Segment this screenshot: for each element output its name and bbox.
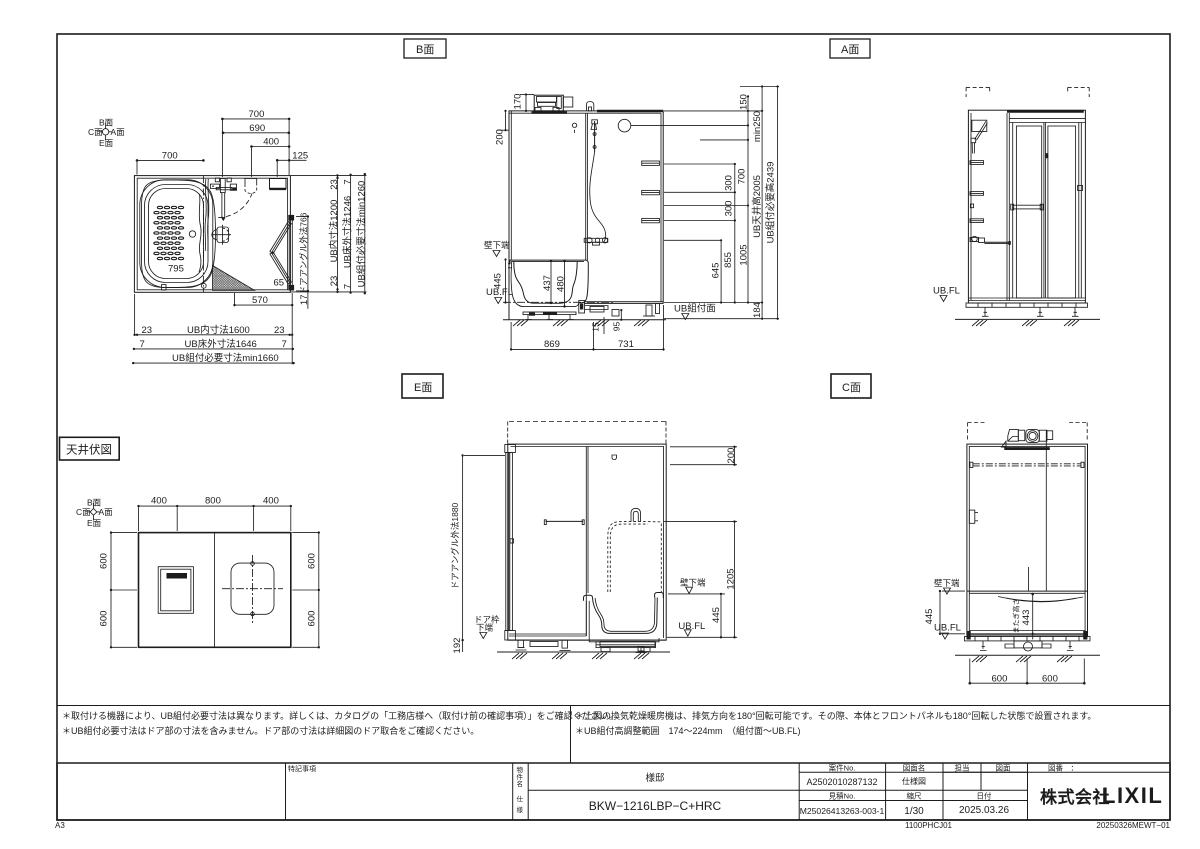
svg-text:1100PHCJ01: 1100PHCJ01 <box>905 821 953 830</box>
svg-text:570: 570 <box>252 295 268 306</box>
svg-text:17: 17 <box>299 295 310 306</box>
svg-text:C面: C面 <box>76 507 91 517</box>
svg-text:A2502010287132: A2502010287132 <box>806 777 877 787</box>
svg-text:445: 445 <box>711 607 722 623</box>
svg-text:E面: E面 <box>87 518 102 528</box>
svg-text:日付: 日付 <box>977 791 992 801</box>
svg-text:800: 800 <box>205 496 221 507</box>
svg-text:様: 様 <box>517 805 524 814</box>
svg-text:B面: B面 <box>99 118 114 128</box>
svg-text:2025.03.26: 2025.03.26 <box>959 805 1009 816</box>
svg-text:物: 物 <box>517 765 524 774</box>
svg-text:443: 443 <box>1021 610 1032 626</box>
svg-text:700: 700 <box>162 150 178 161</box>
svg-text:690: 690 <box>249 123 265 134</box>
svg-text:UB天井高2005: UB天井高2005 <box>751 175 763 238</box>
svg-text:C面: C面 <box>88 127 103 137</box>
svg-text:UB組付必要寸法min1660: UB組付必要寸法min1660 <box>172 352 279 364</box>
svg-text:LIXIL: LIXIL <box>1102 783 1163 808</box>
svg-text:様邸: 様邸 <box>645 772 665 784</box>
svg-text:15: 15 <box>590 322 600 332</box>
svg-text:A面: A面 <box>111 127 126 137</box>
svg-text:600: 600 <box>99 553 110 569</box>
svg-text:図面名: 図面名 <box>903 763 926 773</box>
svg-text:600: 600 <box>99 611 110 627</box>
svg-text:7: 7 <box>342 284 353 289</box>
svg-text:UB組付必要高2439: UB組付必要高2439 <box>765 162 777 244</box>
svg-text:ドアアングル外法1880: ドアアングル外法1880 <box>450 502 460 589</box>
svg-text:192: 192 <box>452 638 463 654</box>
svg-text:UB.FL: UB.FL <box>934 623 961 634</box>
svg-text:＊上図の換気乾燥暖房機は、排気方向を180°回転可能です。そ: ＊上図の換気乾燥暖房機は、排気方向を180°回転可能です。その際、本体とフロント… <box>575 710 1096 721</box>
svg-text:担当: 担当 <box>955 763 970 773</box>
svg-text:7: 7 <box>140 339 145 350</box>
svg-text:23: 23 <box>142 325 153 336</box>
svg-text:1005: 1005 <box>738 244 749 265</box>
svg-text:見積No.: 見積No. <box>829 791 856 801</box>
svg-text:壁下端: 壁下端 <box>680 578 706 588</box>
svg-text:A面: A面 <box>99 507 114 517</box>
svg-text:A3: A3 <box>55 821 65 830</box>
svg-text:184: 184 <box>752 302 763 318</box>
svg-text:縮尺: 縮尺 <box>907 791 922 801</box>
svg-text:300: 300 <box>724 201 735 217</box>
svg-text:700: 700 <box>249 109 265 120</box>
svg-text:E面: E面 <box>414 382 432 394</box>
svg-text:壁下端: 壁下端 <box>934 578 960 588</box>
svg-text:またぎ高さ: またぎ高さ <box>1011 599 1020 634</box>
svg-text:BKW−1216LBP−C+HRC: BKW−1216LBP−C+HRC <box>589 799 722 813</box>
svg-text:min250: min250 <box>752 111 763 142</box>
svg-text:400: 400 <box>263 136 279 147</box>
svg-text:UB内寸法1200: UB内寸法1200 <box>328 200 340 263</box>
svg-text:図番 ：: 図番 ： <box>1048 763 1078 773</box>
svg-text:600: 600 <box>307 611 318 627</box>
svg-text:壁下端: 壁下端 <box>484 240 510 250</box>
svg-text:7: 7 <box>342 179 353 184</box>
svg-text:UB床外寸法1246: UB床外寸法1246 <box>341 196 353 268</box>
svg-text:65: 65 <box>274 278 285 289</box>
svg-text:M25026413263-003-1: M25026413263-003-1 <box>800 806 885 816</box>
svg-text:23: 23 <box>329 179 340 190</box>
svg-text:23: 23 <box>274 325 285 336</box>
svg-text:＊UB組付必要寸法はドア部の寸法を含みません。ドア部の寸法は: ＊UB組付必要寸法はドア部の寸法を含みません。ドア部の寸法は詳細図のドア取合をご… <box>62 725 479 736</box>
svg-text:UB内寸法1600: UB内寸法1600 <box>187 324 250 336</box>
svg-text:645: 645 <box>710 263 721 279</box>
svg-text:C面: C面 <box>842 382 861 394</box>
svg-text:案件No.: 案件No. <box>829 763 856 773</box>
svg-text:1205: 1205 <box>726 568 737 589</box>
svg-text:下端: 下端 <box>476 623 494 633</box>
svg-text:600: 600 <box>1042 674 1058 685</box>
svg-text:UB.FL: UB.FL <box>486 287 513 298</box>
svg-text:UB.FL: UB.FL <box>933 286 960 297</box>
svg-text:400: 400 <box>263 496 279 507</box>
svg-text:200: 200 <box>495 129 506 145</box>
svg-text:UB組付面: UB組付面 <box>674 303 716 315</box>
svg-text:700: 700 <box>736 169 747 185</box>
svg-text:B面: B面 <box>416 44 434 56</box>
svg-text:480: 480 <box>556 276 567 292</box>
svg-text:437: 437 <box>542 275 553 291</box>
svg-text:1/30: 1/30 <box>904 806 924 817</box>
svg-text:仕: 仕 <box>517 794 524 803</box>
svg-text:95: 95 <box>611 322 621 332</box>
svg-text:125: 125 <box>292 150 308 161</box>
svg-text:200: 200 <box>726 448 737 464</box>
svg-text:A面: A面 <box>841 44 859 56</box>
svg-text:869: 869 <box>544 339 560 350</box>
svg-text:件: 件 <box>517 772 524 781</box>
svg-text:名: 名 <box>517 779 524 788</box>
svg-text:600: 600 <box>307 553 318 569</box>
svg-text:23: 23 <box>329 276 340 287</box>
svg-text:＊UB組付高調整範囲 174～224mm （組付面～UB.F: ＊UB組付高調整範囲 174～224mm （組付面～UB.FL) <box>575 725 801 736</box>
svg-text:仕様図: 仕様図 <box>902 776 926 786</box>
svg-text:7: 7 <box>282 339 287 350</box>
svg-text:300: 300 <box>724 175 735 191</box>
svg-text:795: 795 <box>168 264 184 275</box>
svg-text:E面: E面 <box>99 138 114 148</box>
svg-text:UB.FL: UB.FL <box>678 621 705 632</box>
svg-text:600: 600 <box>992 674 1008 685</box>
svg-text:731: 731 <box>618 339 634 350</box>
svg-text:UB床外寸法1646: UB床外寸法1646 <box>185 338 257 350</box>
svg-text:20250326MEWT−01: 20250326MEWT−01 <box>1096 821 1170 830</box>
svg-text:ドアアングル外法766: ドアアングル外法766 <box>299 212 309 294</box>
svg-text:170: 170 <box>513 94 524 110</box>
svg-text:株式会社: 株式会社 <box>1040 787 1110 807</box>
svg-text:特記事項: 特記事項 <box>288 764 316 773</box>
svg-text:図面: 図面 <box>996 764 1011 773</box>
svg-text:天井伏図: 天井伏図 <box>66 443 112 457</box>
svg-text:855: 855 <box>723 252 734 268</box>
svg-text:＊取付ける機器により、UB組付必要寸法は異なります。詳しくは: ＊取付ける機器により、UB組付必要寸法は異なります。詳しくは、カタログの「工務店… <box>62 710 618 721</box>
svg-text:B面: B面 <box>87 498 102 508</box>
svg-text:UB組付必要寸法min1260: UB組付必要寸法min1260 <box>355 181 367 288</box>
svg-text:400: 400 <box>151 496 167 507</box>
